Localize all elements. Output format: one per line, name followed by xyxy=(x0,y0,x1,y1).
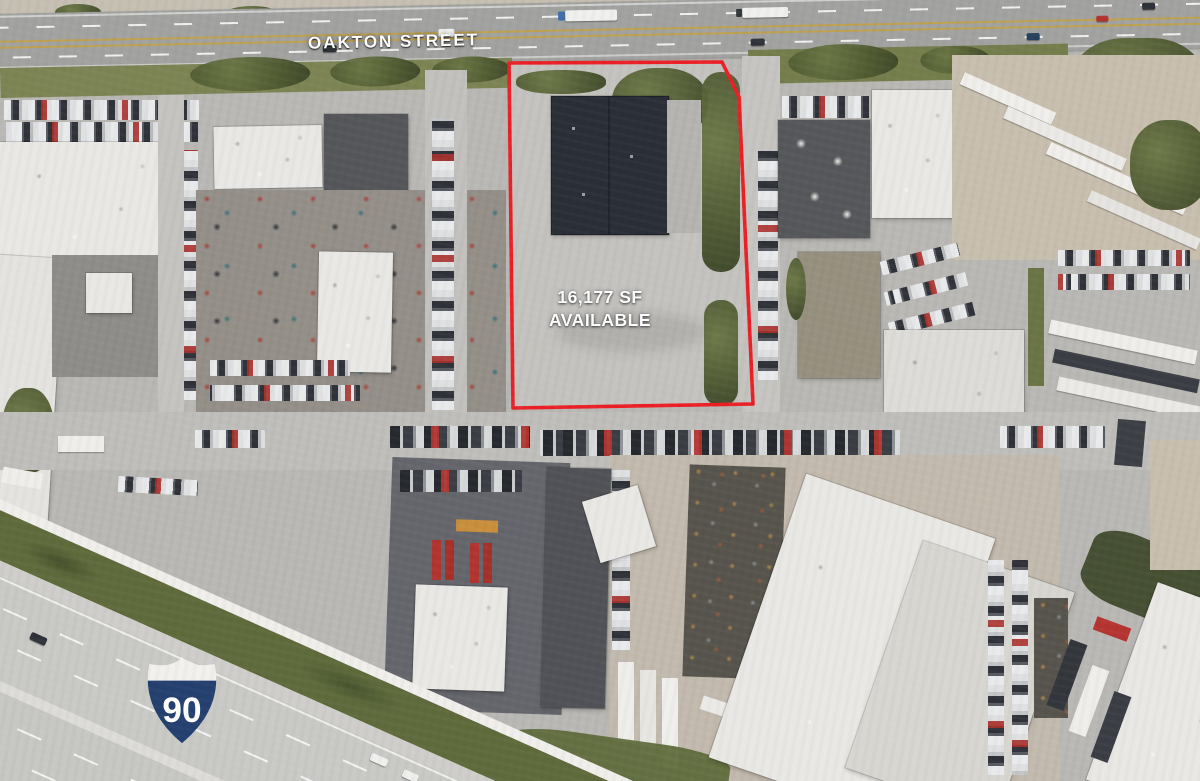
shield-route-number: 90 xyxy=(162,691,201,730)
property-size-text: 16,177 SF xyxy=(505,286,695,309)
aerial-satellite-map: OAKTON STREET xyxy=(0,0,1200,781)
property-label: 16,177 SF AVAILABLE xyxy=(505,286,695,332)
property-status-text: AVAILABLE xyxy=(505,309,695,332)
interstate-90-shield: 90 xyxy=(138,652,226,748)
property-boundary xyxy=(509,62,753,408)
